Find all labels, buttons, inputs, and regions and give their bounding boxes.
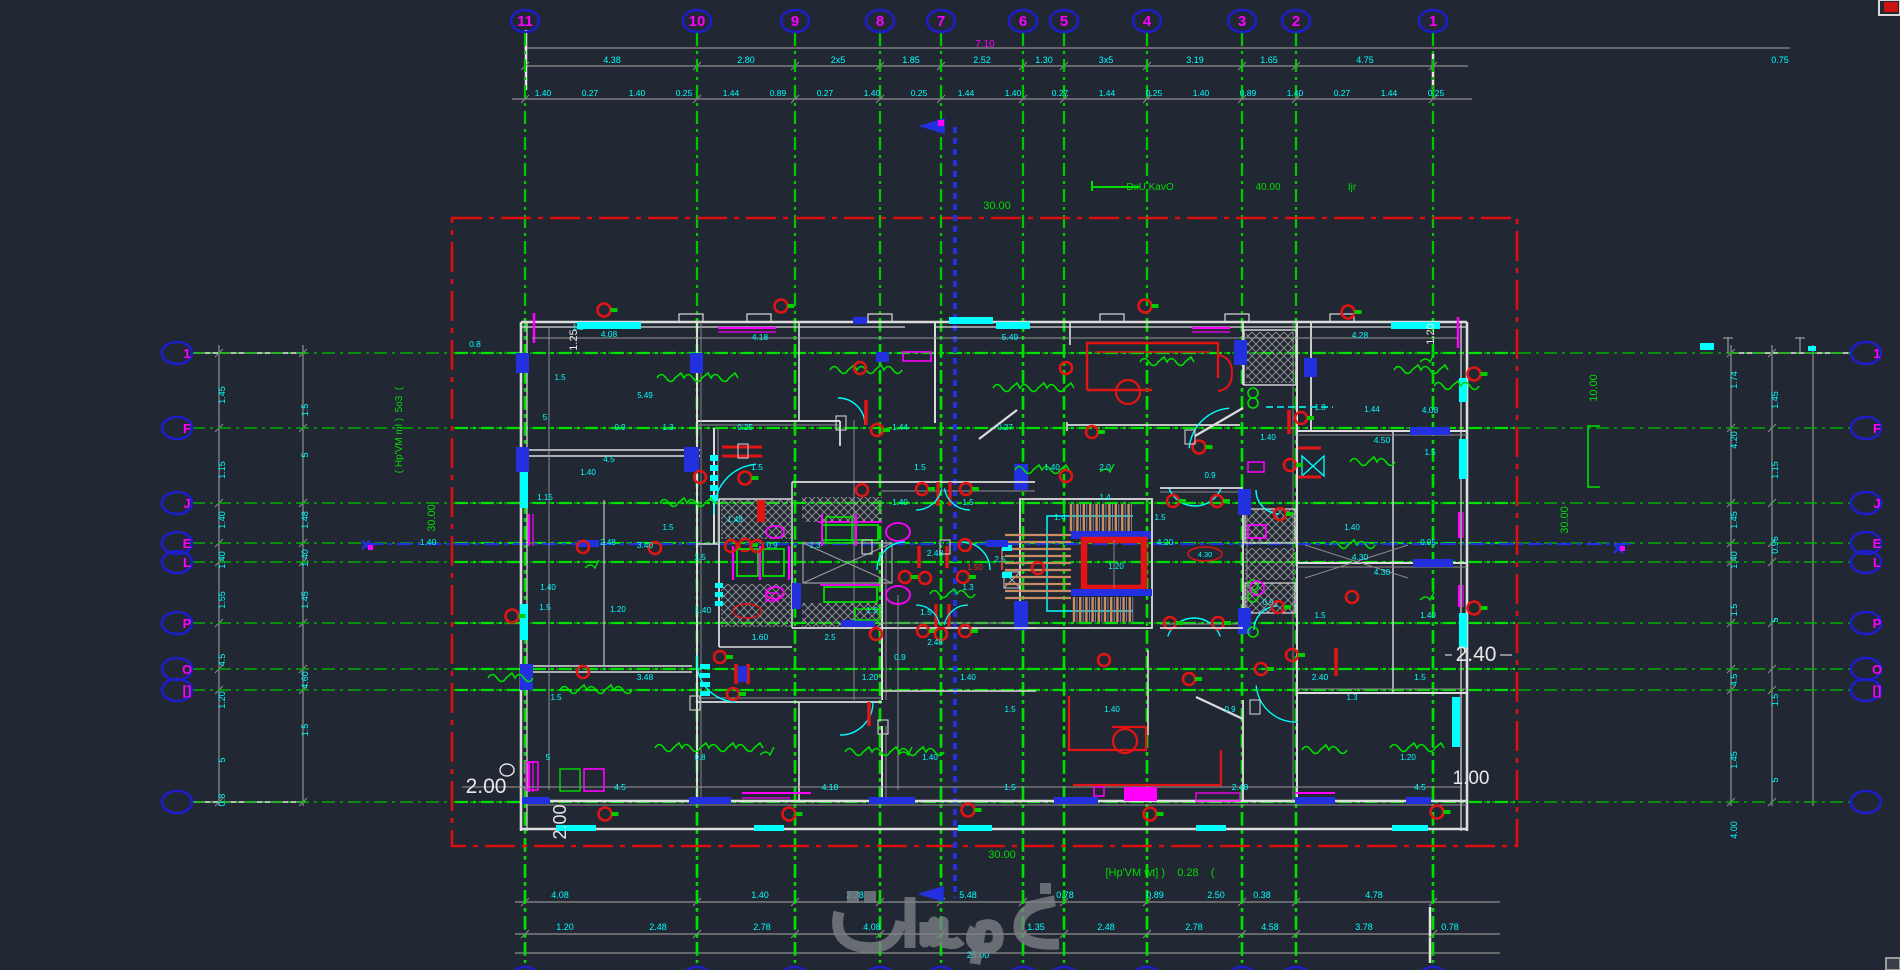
svg-text:0.25: 0.25 (676, 88, 693, 98)
svg-text:4.20: 4.20 (1729, 431, 1739, 449)
svg-text:0.9: 0.9 (1224, 705, 1236, 714)
svg-text:L: L (1873, 555, 1881, 570)
svg-text:10.00: 10.00 (1588, 374, 1600, 402)
svg-text:0.75: 0.75 (1771, 55, 1789, 65)
svg-text:2.0: 2.0 (1099, 462, 1111, 472)
svg-text:1.40: 1.40 (960, 673, 976, 682)
svg-text:1.00: 1.00 (1453, 768, 1490, 789)
svg-text:1.40: 1.40 (420, 537, 437, 547)
svg-text:2.5: 2.5 (824, 633, 836, 642)
svg-text:7: 7 (937, 13, 945, 30)
svg-text:1: 1 (1873, 346, 1880, 361)
svg-text:1.40: 1.40 (864, 88, 881, 98)
svg-text:1.20: 1.20 (556, 922, 574, 932)
svg-text:1.5: 1.5 (554, 373, 566, 382)
svg-text:4.30: 4.30 (1352, 552, 1369, 562)
svg-text:2.48: 2.48 (600, 538, 616, 547)
svg-text:1.48: 1.48 (727, 515, 743, 524)
svg-text:1.40: 1.40 (922, 753, 938, 762)
svg-text:2.50: 2.50 (1207, 890, 1225, 900)
svg-text:4.20: 4.20 (1157, 537, 1174, 547)
svg-text:5.49: 5.49 (1002, 332, 1019, 342)
svg-text:4.08: 4.08 (551, 890, 569, 900)
svg-text:4.75: 4.75 (1356, 55, 1374, 65)
svg-text:1.40: 1.40 (300, 549, 310, 567)
svg-text:0.25: 0.25 (911, 88, 928, 98)
svg-text:30.00: 30.00 (988, 849, 1016, 861)
svg-text:0.9: 0.9 (614, 423, 626, 432)
svg-text:1.5: 1.5 (866, 605, 878, 615)
svg-text:2.00: 2.00 (550, 804, 570, 839)
svg-text:0.89: 0.89 (770, 88, 787, 98)
svg-text:1.45: 1.45 (1729, 511, 1739, 529)
svg-text:11: 11 (517, 13, 533, 30)
svg-text:4.08: 4.08 (601, 329, 618, 339)
svg-text:1.44: 1.44 (958, 88, 975, 98)
svg-text:1.40: 1.40 (1260, 433, 1276, 442)
svg-text:1.40: 1.40 (535, 88, 552, 98)
svg-text:1.40: 1.40 (892, 498, 908, 507)
svg-text:2x5: 2x5 (831, 55, 846, 65)
svg-text:1.40: 1.40 (1729, 551, 1739, 569)
svg-text:O: O (1872, 662, 1882, 677)
svg-text:1.74: 1.74 (1729, 371, 1739, 389)
svg-text:4.38: 4.38 (603, 55, 621, 65)
svg-text:5: 5 (1770, 777, 1780, 782)
svg-text:1.44: 1.44 (1381, 88, 1398, 98)
svg-text:1.40: 1.40 (1193, 88, 1210, 98)
svg-text:J: J (183, 496, 190, 511)
svg-text:0.25: 0.25 (1428, 88, 1445, 98)
svg-text:1.40: 1.40 (217, 511, 227, 529)
svg-text:2.48: 2.48 (927, 638, 943, 647)
svg-text:1.3: 1.3 (1314, 403, 1326, 412)
svg-text:5.49: 5.49 (637, 391, 653, 400)
svg-text:4.5: 4.5 (1414, 782, 1426, 792)
svg-text:[HpʹVM wt] ) 0.28 (: [HpʹVM wt] ) 0.28 ( (1105, 867, 1214, 879)
svg-text:1.3: 1.3 (809, 541, 821, 550)
svg-text:3.40: 3.40 (637, 540, 654, 550)
svg-text:1.5: 1.5 (539, 602, 551, 612)
svg-text:1.3: 1.3 (962, 583, 974, 592)
svg-text:5: 5 (1060, 13, 1068, 30)
svg-text:1.48: 1.48 (300, 511, 310, 529)
svg-text:2.5: 2.5 (994, 555, 1006, 564)
svg-text:1.30: 1.30 (1035, 55, 1053, 65)
svg-text:4: 4 (1143, 13, 1152, 30)
svg-text:L: L (183, 555, 191, 570)
svg-text:1.20: 1.20 (862, 672, 879, 682)
svg-text:4.28: 4.28 (1352, 330, 1369, 340)
svg-text:1.40: 1.40 (751, 890, 769, 900)
svg-text:0.95: 0.95 (1420, 538, 1436, 547)
svg-text:0.78: 0.78 (1056, 890, 1074, 900)
svg-text:1.44: 1.44 (723, 88, 740, 98)
svg-text:1.5: 1.5 (1004, 705, 1016, 714)
svg-text:0.9: 0.9 (766, 541, 778, 550)
svg-text:1.44: 1.44 (1364, 405, 1380, 414)
svg-text:6: 6 (1019, 13, 1027, 30)
svg-text:1.4: 1.4 (1054, 512, 1066, 522)
svg-text:[]: [] (1873, 683, 1882, 698)
svg-text:1.45: 1.45 (300, 591, 310, 609)
svg-text:1.5: 1.5 (1424, 448, 1436, 457)
svg-text:3.48: 3.48 (637, 672, 654, 682)
svg-text:Ijr: Ijr (1348, 182, 1357, 193)
svg-text:9: 9 (791, 13, 799, 30)
svg-text:5: 5 (546, 753, 551, 762)
svg-text:4.08: 4.08 (863, 922, 881, 932)
svg-text:1.20: 1.20 (1425, 323, 1437, 344)
svg-text:1.5: 1.5 (1770, 694, 1780, 707)
svg-text:1.50: 1.50 (967, 563, 983, 572)
svg-text:0.25: 0.25 (1146, 88, 1163, 98)
svg-text:4.30: 4.30 (1198, 550, 1213, 559)
svg-text:4.18: 4.18 (822, 782, 839, 792)
svg-text:1.45: 1.45 (1770, 391, 1780, 409)
svg-text:5.48: 5.48 (959, 890, 977, 900)
svg-text:J: J (1873, 496, 1880, 511)
svg-text:4.58: 4.58 (1261, 922, 1279, 932)
svg-text:1.5: 1.5 (920, 607, 932, 617)
svg-text:1.40: 1.40 (1420, 611, 1436, 620)
svg-text:4.18: 4.18 (752, 332, 769, 342)
svg-text:2: 2 (1292, 13, 1300, 30)
svg-text:1.15: 1.15 (1770, 461, 1780, 479)
svg-text:1.60: 1.60 (752, 632, 769, 642)
svg-text:1.5: 1.5 (300, 724, 310, 737)
svg-text:30.00: 30.00 (426, 504, 438, 532)
svg-text:1.3: 1.3 (662, 423, 674, 432)
svg-text:2.78: 2.78 (1185, 922, 1203, 932)
svg-text:30.00: 30.00 (1559, 506, 1571, 534)
svg-text:2.48: 2.48 (927, 548, 944, 558)
svg-text:3: 3 (1238, 13, 1246, 30)
svg-text:1.45: 1.45 (1729, 751, 1739, 769)
svg-text:0.27: 0.27 (1052, 88, 1069, 98)
svg-text:0.89: 0.89 (1240, 88, 1257, 98)
svg-text:2.00: 2.00 (466, 775, 507, 798)
svg-text:1.5: 1.5 (962, 498, 974, 507)
svg-text:8: 8 (876, 13, 884, 30)
svg-text:3.19: 3.19 (1186, 55, 1204, 65)
svg-text:0.27: 0.27 (582, 88, 599, 98)
svg-text:0.8: 0.8 (469, 339, 481, 349)
svg-text:1.40: 1.40 (217, 551, 227, 569)
svg-text:3.78: 3.78 (1355, 922, 1373, 932)
svg-text:1: 1 (183, 346, 190, 361)
svg-text:0.89: 0.89 (1146, 890, 1164, 900)
svg-text:P: P (1873, 616, 1882, 631)
svg-text:1.55: 1.55 (217, 591, 227, 609)
svg-text:1.5: 1.5 (1154, 513, 1166, 522)
svg-text:1.5: 1.5 (300, 404, 310, 417)
svg-text:4.78: 4.78 (1365, 890, 1383, 900)
svg-text:2.78: 2.78 (753, 922, 771, 932)
svg-text:O: O (182, 662, 192, 677)
svg-text:7.10: 7.10 (975, 39, 995, 50)
svg-text:1.40: 1.40 (540, 583, 556, 592)
svg-text:P: P (183, 616, 192, 631)
svg-text:5: 5 (300, 452, 310, 457)
svg-text:1.20: 1.20 (1108, 562, 1124, 571)
svg-text:1.85: 1.85 (902, 55, 920, 65)
svg-text:0.38: 0.38 (1253, 890, 1271, 900)
svg-text:F: F (183, 421, 191, 436)
svg-text:E: E (183, 536, 192, 551)
svg-text:0.78: 0.78 (1441, 922, 1459, 932)
svg-text:1.40: 1.40 (1104, 705, 1120, 714)
svg-text:2.48: 2.48 (1097, 922, 1115, 932)
svg-text:1.40: 1.40 (695, 605, 712, 615)
svg-text:4.08: 4.08 (1422, 405, 1439, 415)
svg-text:1.5: 1.5 (550, 693, 562, 702)
svg-text:1.5: 1.5 (751, 462, 763, 472)
svg-text:2.40: 2.40 (1312, 672, 1329, 682)
svg-text:1.44: 1.44 (892, 423, 908, 432)
svg-text:2.52: 2.52 (973, 55, 991, 65)
svg-text:1.5: 1.5 (1314, 611, 1326, 620)
svg-text:0.9: 0.9 (894, 652, 906, 662)
svg-text:5: 5 (543, 412, 548, 422)
svg-text:5: 5 (217, 757, 227, 762)
svg-text:3x5: 3x5 (1099, 55, 1114, 65)
svg-text:4.5: 4.5 (603, 454, 615, 464)
svg-text:1.25: 1.25 (568, 329, 580, 350)
svg-text:1.40: 1.40 (580, 468, 596, 477)
svg-text:1.20: 1.20 (217, 691, 227, 709)
svg-text:E: E (1873, 536, 1882, 551)
svg-text:0.25: 0.25 (737, 423, 753, 432)
svg-text:0.27: 0.27 (997, 423, 1013, 432)
svg-text:5: 5 (1770, 617, 1780, 622)
svg-text:1.5: 1.5 (1729, 604, 1739, 617)
svg-text:F: F (1873, 421, 1881, 436)
svg-text:1.20: 1.20 (610, 605, 626, 614)
svg-text:4.5: 4.5 (1729, 674, 1739, 687)
svg-text:1.40: 1.40 (1287, 88, 1304, 98)
svg-text:4.30: 4.30 (1374, 567, 1391, 577)
svg-text:1.15: 1.15 (217, 461, 227, 479)
svg-text:40.00: 40.00 (1255, 182, 1280, 193)
svg-text:0.8: 0.8 (217, 794, 227, 807)
svg-text:1.5: 1.5 (662, 523, 674, 532)
svg-text:1.40: 1.40 (1344, 523, 1360, 532)
svg-text:1.5: 1.5 (914, 462, 926, 472)
svg-text:0.9: 0.9 (1204, 471, 1216, 480)
svg-text:2.40: 2.40 (1456, 643, 1497, 666)
svg-text:1.45: 1.45 (217, 386, 227, 404)
svg-text:2.80: 2.80 (737, 55, 755, 65)
svg-text:1.15: 1.15 (537, 493, 553, 502)
svg-text:1.3: 1.3 (1346, 693, 1358, 702)
svg-text:1.2: 1.2 (572, 323, 584, 332)
svg-text:0.27: 0.27 (1334, 88, 1351, 98)
svg-text:4.5: 4.5 (614, 782, 626, 792)
svg-text:10: 10 (689, 13, 706, 30)
svg-text:1.5: 1.5 (1414, 672, 1426, 682)
svg-text:2.48: 2.48 (1232, 782, 1249, 792)
svg-text:1.65: 1.65 (1260, 55, 1278, 65)
svg-text:0.95: 0.95 (1770, 536, 1780, 554)
svg-text:1.5: 1.5 (694, 552, 706, 562)
svg-text:4.00: 4.00 (1729, 821, 1739, 839)
svg-text:1.4: 1.4 (1099, 493, 1111, 502)
svg-text:1: 1 (1429, 13, 1437, 30)
svg-text:0.9: 0.9 (1262, 598, 1274, 607)
svg-text:[]: [] (183, 683, 192, 698)
svg-text:( HpʹVM ml ) 5o3 (: ( HpʹVM ml ) 5o3 ( (394, 386, 405, 473)
svg-text:1.40: 1.40 (629, 88, 646, 98)
svg-text:4.5: 4.5 (217, 654, 227, 667)
svg-text:1.40: 1.40 (1005, 88, 1022, 98)
svg-text:0.27: 0.27 (817, 88, 834, 98)
svg-text:30.00: 30.00 (983, 200, 1011, 212)
svg-text:1.5: 1.5 (1004, 782, 1016, 792)
svg-text:4.60: 4.60 (300, 671, 310, 689)
svg-text:1.35: 1.35 (1027, 922, 1045, 932)
svg-text:1.40: 1.40 (1044, 463, 1060, 472)
svg-text:1.44: 1.44 (1099, 88, 1116, 98)
svg-text:2.48: 2.48 (649, 922, 667, 932)
svg-text:4.50: 4.50 (1374, 435, 1391, 445)
svg-text:1.20: 1.20 (1400, 753, 1416, 762)
svg-text:0.8: 0.8 (694, 753, 706, 762)
